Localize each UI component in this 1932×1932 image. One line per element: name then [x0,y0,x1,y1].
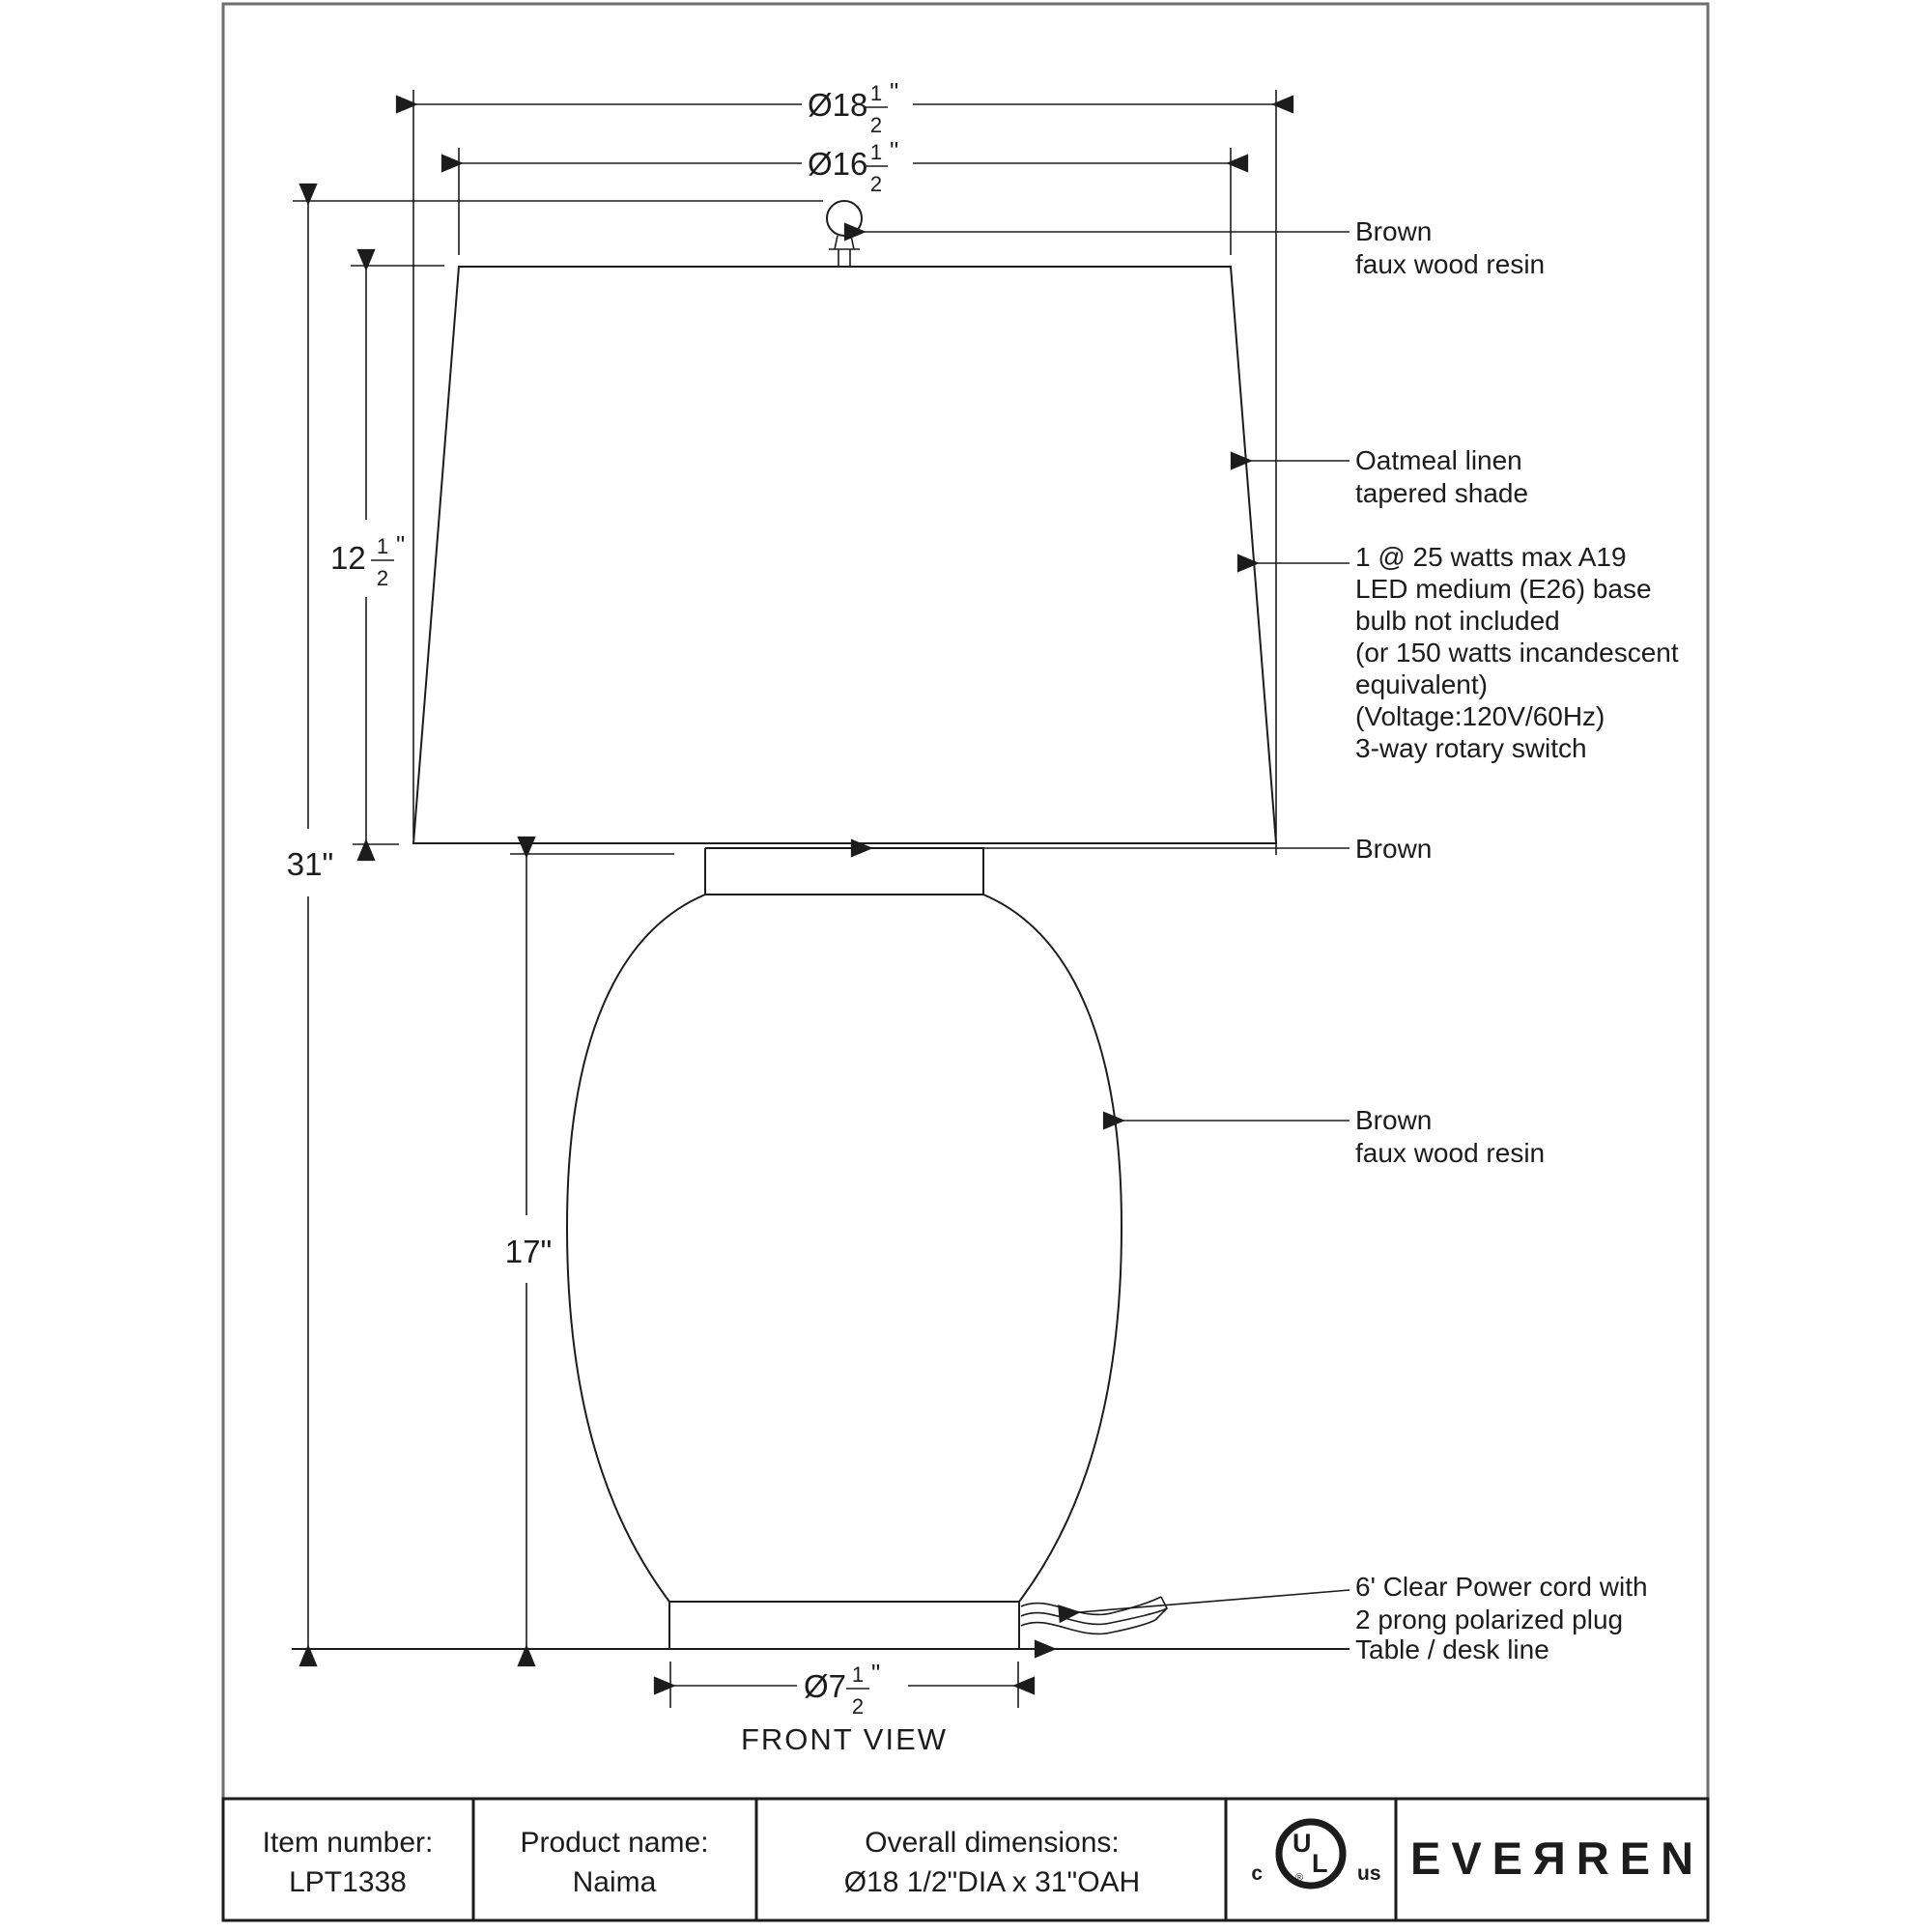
shade [413,267,1276,843]
svg-text:": " [890,136,898,165]
svg-text:U: U [1293,1829,1312,1858]
product-name-label: Product name: [520,1827,708,1859]
annotation-shade: Oatmeal linen tapered shade [1251,445,1528,508]
svg-text:bulb not included: bulb not included [1355,606,1560,636]
svg-text:®: ® [1295,1872,1303,1884]
item-number-label: Item number: [263,1827,434,1859]
dim-label-base-dia: Ø7 [804,1668,846,1704]
overall-dimensions-label: Overall dimensions: [865,1827,1119,1859]
svg-text:c: c [1251,1862,1263,1885]
body [567,895,1122,1602]
spec-sheet: Ø18 1 2 " Ø16 1 2 " 31" 12 1 2 " [0,0,1932,1932]
svg-text:1: 1 [870,81,882,105]
title-cell-product-name: Product name: Naima [520,1827,708,1898]
svg-text:faux wood resin: faux wood resin [1355,1138,1545,1168]
finial [827,201,862,267]
annotation-neck: Brown [871,834,1432,864]
svg-text:2 prong polarized plug: 2 prong polarized plug [1355,1605,1623,1634]
title-block: Item number: LPT1338 Product name: Naima… [223,1799,1708,1920]
svg-text:1: 1 [377,534,388,558]
dim-label-overall-height: 31" [287,846,333,882]
svg-text:(Voltage:120V/60Hz): (Voltage:120V/60Hz) [1355,701,1605,731]
svg-text:6' Clear Power cord with: 6' Clear Power cord with [1355,1572,1648,1602]
svg-text:2: 2 [870,172,882,196]
annotation-body: Brown faux wood resin [1123,1105,1545,1168]
svg-text:equivalent): equivalent) [1355,669,1488,699]
lamp-technical-drawing: Ø18 1 2 " Ø16 1 2 " 31" 12 1 2 " [0,0,1932,1932]
svg-text:": " [396,530,405,559]
svg-text:3-way rotary switch: 3-way rotary switch [1355,733,1587,763]
item-number-value: LPT1338 [289,1866,407,1898]
base [669,1602,1019,1649]
lamp-outline [292,201,1350,1649]
svg-text:Brown: Brown [1355,216,1432,246]
product-name-value: Naima [573,1866,657,1898]
svg-text:Oatmeal linen: Oatmeal linen [1355,445,1522,475]
front-view-label: FRONT VIEW [741,1722,948,1756]
ul-listed-icon: U L ® c us [1251,1822,1380,1886]
title-cell-item-number: Item number: LPT1338 [263,1827,434,1898]
svg-text:(or 150 watts incandescent: (or 150 watts incandescent [1355,638,1679,668]
brand-logo: EVEЯREN [1410,1833,1704,1884]
dim-shade-height: 12 1 2 " [330,266,444,844]
svg-text:2: 2 [852,1694,864,1719]
title-cell-overall-dimensions: Overall dimensions: Ø18 1/2"DIA x 31"OAH [844,1827,1140,1898]
svg-text:1 @ 25 watts max A19: 1 @ 25 watts max A19 [1355,542,1627,572]
dim-label-body-height: 17" [505,1234,552,1269]
svg-text:Brown: Brown [1355,834,1432,864]
annotation-finial: Brown faux wood resin [865,216,1545,279]
dim-label-shade-top: Ø16 [808,146,867,182]
svg-text:": " [871,1659,880,1688]
svg-text:faux wood resin: faux wood resin [1355,249,1545,279]
svg-text:tapered shade: tapered shade [1355,478,1528,508]
svg-text:1: 1 [870,140,882,164]
dim-body-height: 17" [505,854,674,1646]
svg-text:1: 1 [852,1662,864,1687]
annotation-bulb: 1 @ 25 watts max A19 LED medium (E26) ba… [1258,542,1679,763]
dim-base-dia: Ø7 1 2 " [670,1659,1018,1719]
svg-text:L: L [1312,1849,1328,1878]
svg-text:LED medium (E26) base: LED medium (E26) base [1355,574,1652,604]
svg-text:2: 2 [377,566,388,590]
power-cord [1021,1597,1167,1634]
dim-shade-bottom-dia: Ø18 1 2 " [413,77,1276,855]
svg-text:2: 2 [870,113,882,137]
dim-shade-top-dia: Ø16 1 2 " [459,136,1231,255]
svg-text:Table / desk line: Table / desk line [1355,1634,1549,1664]
overall-dimensions-value: Ø18 1/2"DIA x 31"OAH [844,1866,1140,1898]
neck [705,848,983,895]
dim-label-shade-bottom: Ø18 [808,87,867,123]
dim-overall-height: 31" [287,201,823,1646]
dim-label-shade-height: 12 [330,540,366,576]
svg-text:": " [890,77,898,106]
svg-text:us: us [1357,1862,1381,1885]
svg-text:Brown: Brown [1355,1105,1432,1135]
